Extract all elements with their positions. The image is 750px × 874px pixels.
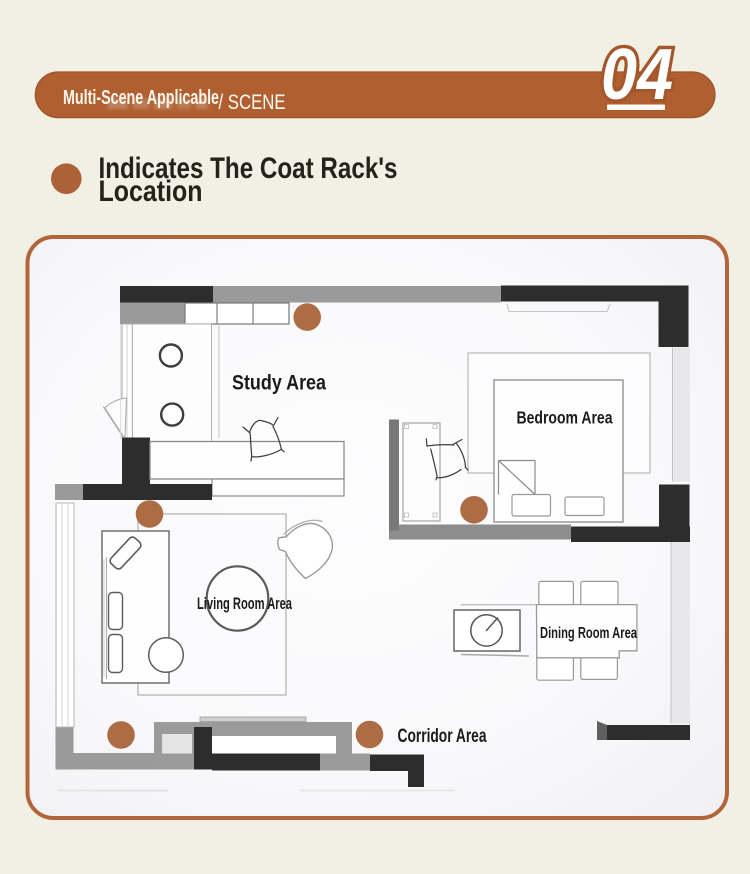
svg-text:Location: Location — [99, 175, 203, 208]
svg-text:/ SCENE: / SCENE — [219, 91, 286, 114]
svg-text:Bedroom Area: Bedroom Area — [517, 407, 613, 427]
svg-text:Study Area: Study Area — [232, 372, 326, 395]
svg-text:Corridor Area: Corridor Area — [398, 726, 487, 747]
svg-text:Living Room Area: Living Room Area — [197, 595, 293, 613]
svg-text:04: 04 — [601, 35, 673, 115]
svg-text:Multi-Scene Applicable: Multi-Scene Applicable — [63, 86, 219, 109]
svg-text:Dining Room Area: Dining Room Area — [540, 625, 637, 642]
